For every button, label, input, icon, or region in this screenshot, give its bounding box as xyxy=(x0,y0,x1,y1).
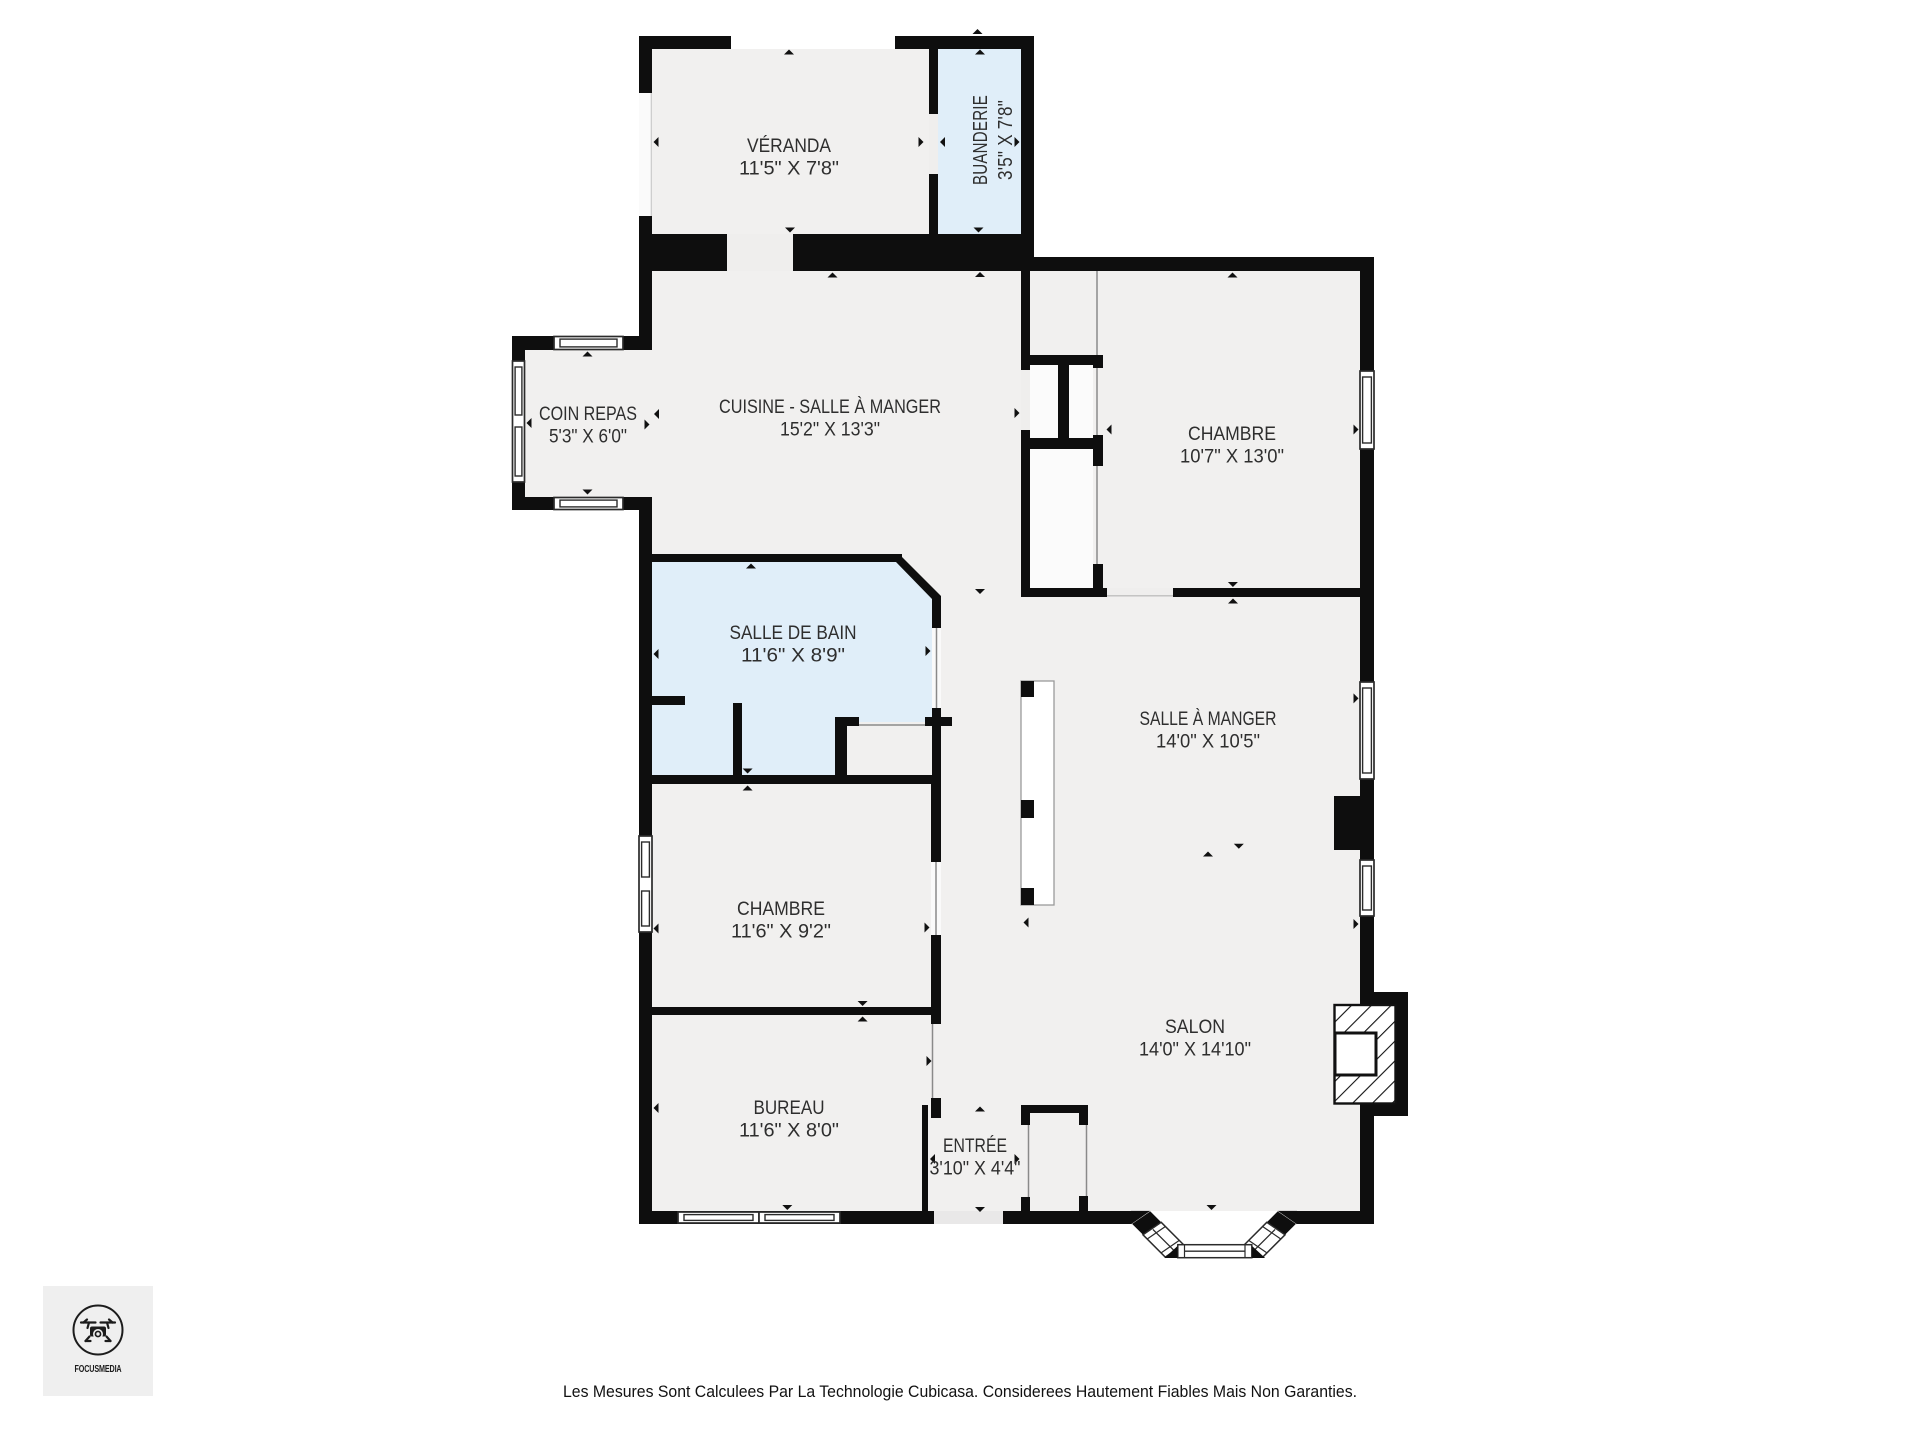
svg-text:ENTRÉE: ENTRÉE xyxy=(943,1136,1007,1157)
svg-text:15'2" X 13'3": 15'2" X 13'3" xyxy=(780,420,880,441)
svg-text:14'0" X 14'10": 14'0" X 14'10" xyxy=(1139,1040,1251,1061)
svg-text:VÉRANDA: VÉRANDA xyxy=(747,136,831,157)
svg-text:BUANDERIE: BUANDERIE xyxy=(969,95,992,185)
svg-text:CHAMBRE: CHAMBRE xyxy=(1188,424,1276,445)
svg-text:CUISINE - SALLE À MANGER: CUISINE - SALLE À MANGER xyxy=(719,397,941,418)
svg-text:SALLE À MANGER: SALLE À MANGER xyxy=(1140,709,1277,730)
svg-text:10'7" X 13'0": 10'7" X 13'0" xyxy=(1180,447,1284,468)
svg-text:11'6" X 8'0": 11'6" X 8'0" xyxy=(739,1121,839,1142)
svg-text:3'5" X 7'8": 3'5" X 7'8" xyxy=(994,100,1017,180)
svg-text:11'6" X 8'9": 11'6" X 8'9" xyxy=(741,646,845,667)
svg-text:CHAMBRE: CHAMBRE xyxy=(737,899,825,920)
svg-text:SALLE DE BAIN: SALLE DE BAIN xyxy=(730,623,857,644)
svg-text:14'0" X 10'5": 14'0" X 10'5" xyxy=(1156,732,1260,753)
svg-text:3'10" X 4'4": 3'10" X 4'4" xyxy=(930,1159,1021,1180)
svg-text:11'5" X 7'8": 11'5" X 7'8" xyxy=(739,159,839,180)
svg-text:5'3" X 6'0": 5'3" X 6'0" xyxy=(549,427,627,448)
svg-text:COIN REPAS: COIN REPAS xyxy=(539,404,637,425)
svg-text:SALON: SALON xyxy=(1165,1017,1225,1038)
svg-text:11'6" X 9'2": 11'6" X 9'2" xyxy=(731,922,831,943)
svg-text:BUREAU: BUREAU xyxy=(754,1098,825,1119)
svg-text:Les Mesures Sont Calculees Par: Les Mesures Sont Calculees Par La Techno… xyxy=(563,1383,1357,1401)
svg-text:FOCUSMEDIA: FOCUSMEDIA xyxy=(75,1363,122,1375)
